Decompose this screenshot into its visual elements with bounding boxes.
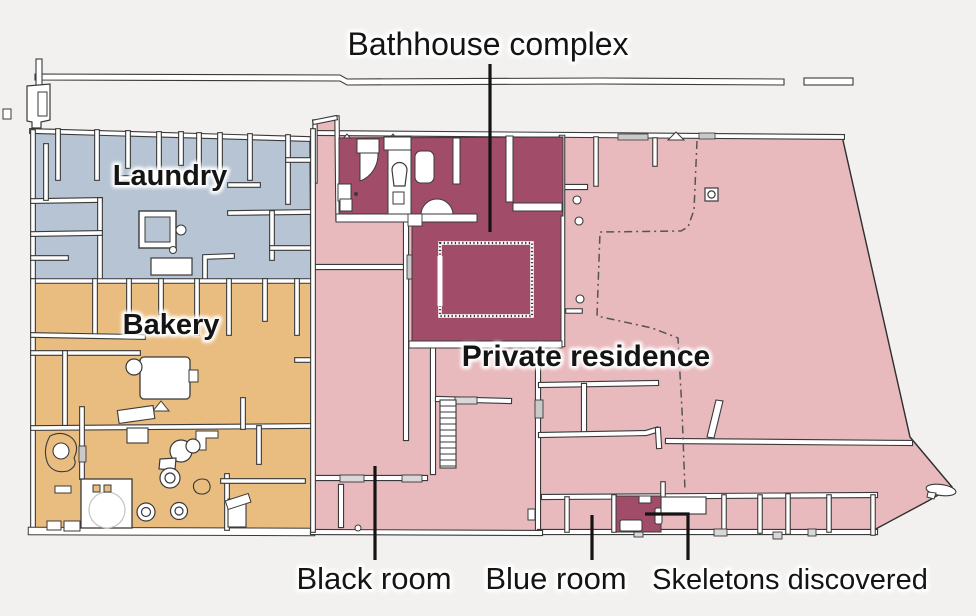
svg-text:Blue room: Blue room	[485, 561, 626, 596]
svg-text:Bathhouse complex: Bathhouse complex	[347, 26, 628, 62]
svg-text:Bakery: Bakery	[123, 309, 220, 341]
svg-text:Laundry: Laundry	[113, 160, 227, 192]
svg-text:Black room: Black room	[296, 561, 451, 596]
svg-text:Private residence: Private residence	[462, 340, 710, 373]
svg-text:Skeletons discovered: Skeletons discovered	[652, 564, 928, 596]
